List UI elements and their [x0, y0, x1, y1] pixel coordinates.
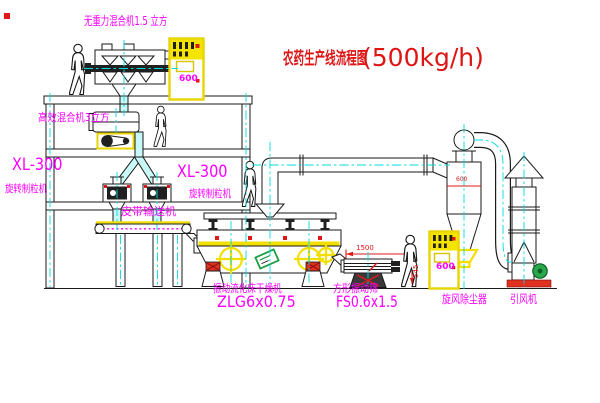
label-dryer-model: ZLG6x0.75 — [217, 294, 296, 310]
label-granulator-name-right: 旋转制粒机 — [189, 189, 231, 200]
cabinet-right-code: 600 — [436, 263, 455, 272]
label-high-efficiency-mixer: 高效混合机3立方 — [38, 112, 109, 123]
person-1 — [70, 44, 85, 94]
label-cyclone: 旋风除尘器 — [442, 294, 487, 306]
page-title: 农药生产线流程图 — [283, 51, 367, 68]
belt-conveyor — [95, 222, 205, 286]
page-title-capacity: (500kg/h) — [362, 45, 484, 70]
exhaust-duct — [256, 155, 447, 218]
cabinet-top-code: 600 — [179, 75, 198, 84]
label-gravity-free-mixer: 无重力混合机1.5 立方 — [84, 15, 167, 27]
label-belt-conveyor: 皮带输送机 — [121, 206, 176, 217]
induced-draft-fan — [507, 263, 551, 287]
dim-screen-height: 545 — [413, 265, 420, 278]
fluid-bed-dryer — [197, 213, 352, 287]
control-cabinet-right — [430, 232, 459, 289]
person-2 — [154, 106, 166, 146]
dim-cyclone: 600 — [456, 177, 467, 183]
label-granulator-model-left: XL-300 — [12, 157, 62, 174]
person-4 — [402, 235, 417, 286]
flow-diagram-canvas: 农药生产线流程图 (500kg/h) 无重力混合机1.5 立方 高效混合机3立方… — [0, 0, 600, 403]
label-granulator-model-right: XL-300 — [177, 164, 227, 181]
red-mark — [4, 13, 10, 19]
control-cabinet-top — [170, 39, 204, 100]
label-granulator-name-left: 旋转制粒机 — [5, 184, 47, 195]
label-screen-model: FS0.6x1.5 — [336, 294, 398, 310]
dim-screen-length: 1500 — [356, 245, 374, 252]
label-fan: 引风机 — [510, 294, 537, 306]
